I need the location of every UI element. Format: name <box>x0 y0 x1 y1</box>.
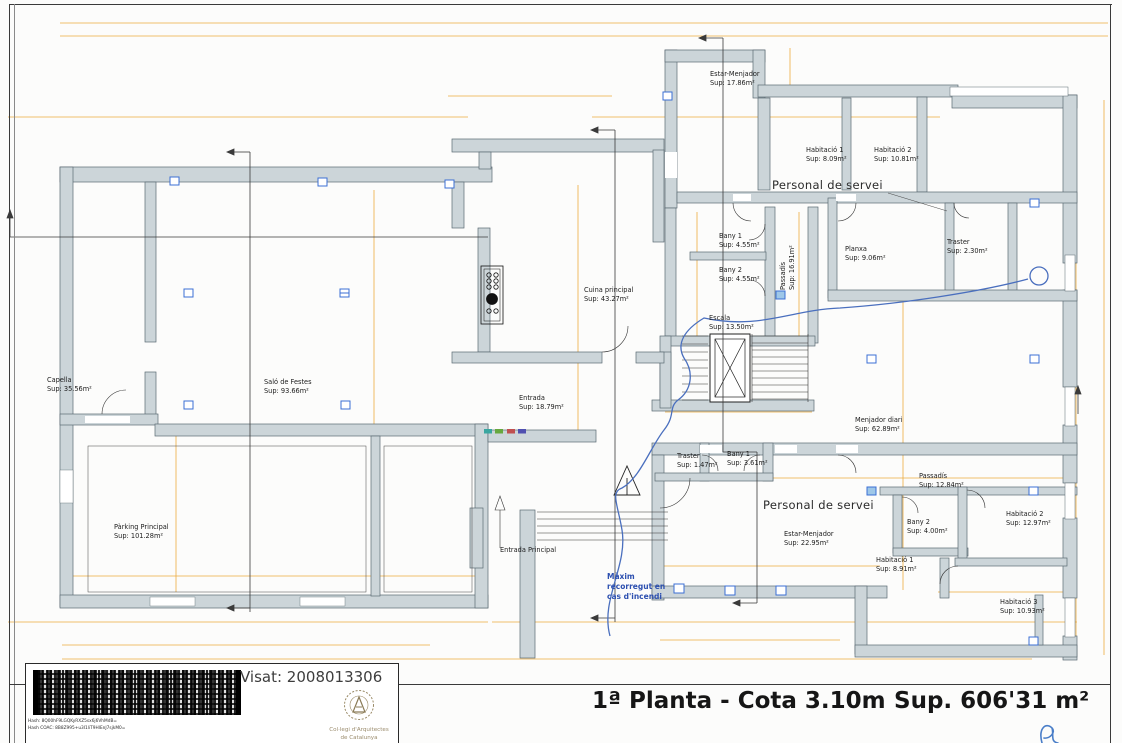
pen-squiggle <box>1020 712 1080 743</box>
hash-line-1: Hash: 8Q00hF9LGQKyRXZ5sx6j6VhMdB= <box>28 719 125 726</box>
section-markers-layer <box>0 0 1122 663</box>
barcode <box>33 670 241 715</box>
visa-number: Visat: 2008013306 <box>240 668 382 686</box>
total-area: Sup. 606'31 m² <box>894 688 1089 714</box>
hash-lines: Hash: 8Q00hF9LGQKyRXZ5sx6j6VhMdB= Hash C… <box>28 719 125 733</box>
architects-seal: Col·legi d'Arquitectes de Catalunya <box>322 688 396 742</box>
seal-caption-2: de Catalunya <box>322 735 396 742</box>
plan-title: 1ª Planta - Cota 3.10m <box>592 688 886 714</box>
seal-caption: Col·legi d'Arquitectes <box>322 727 396 734</box>
visa-title-block: Visat: 2008013306 Hash: 8Q00hF9LGQKyRXZ5… <box>25 663 399 743</box>
seal-emblem-icon <box>342 688 376 722</box>
hash-line-2: Hash COAC: 8B8Z995+u3I1liT9HlEnJ7sjkM0= <box>28 726 125 733</box>
fire-escape-note: Màxim recorregut en cas d'incendi <box>607 572 665 602</box>
scanned-floor-plan-page: Capella Sup: 35.56m² Saló de Festes Sup:… <box>0 0 1122 743</box>
